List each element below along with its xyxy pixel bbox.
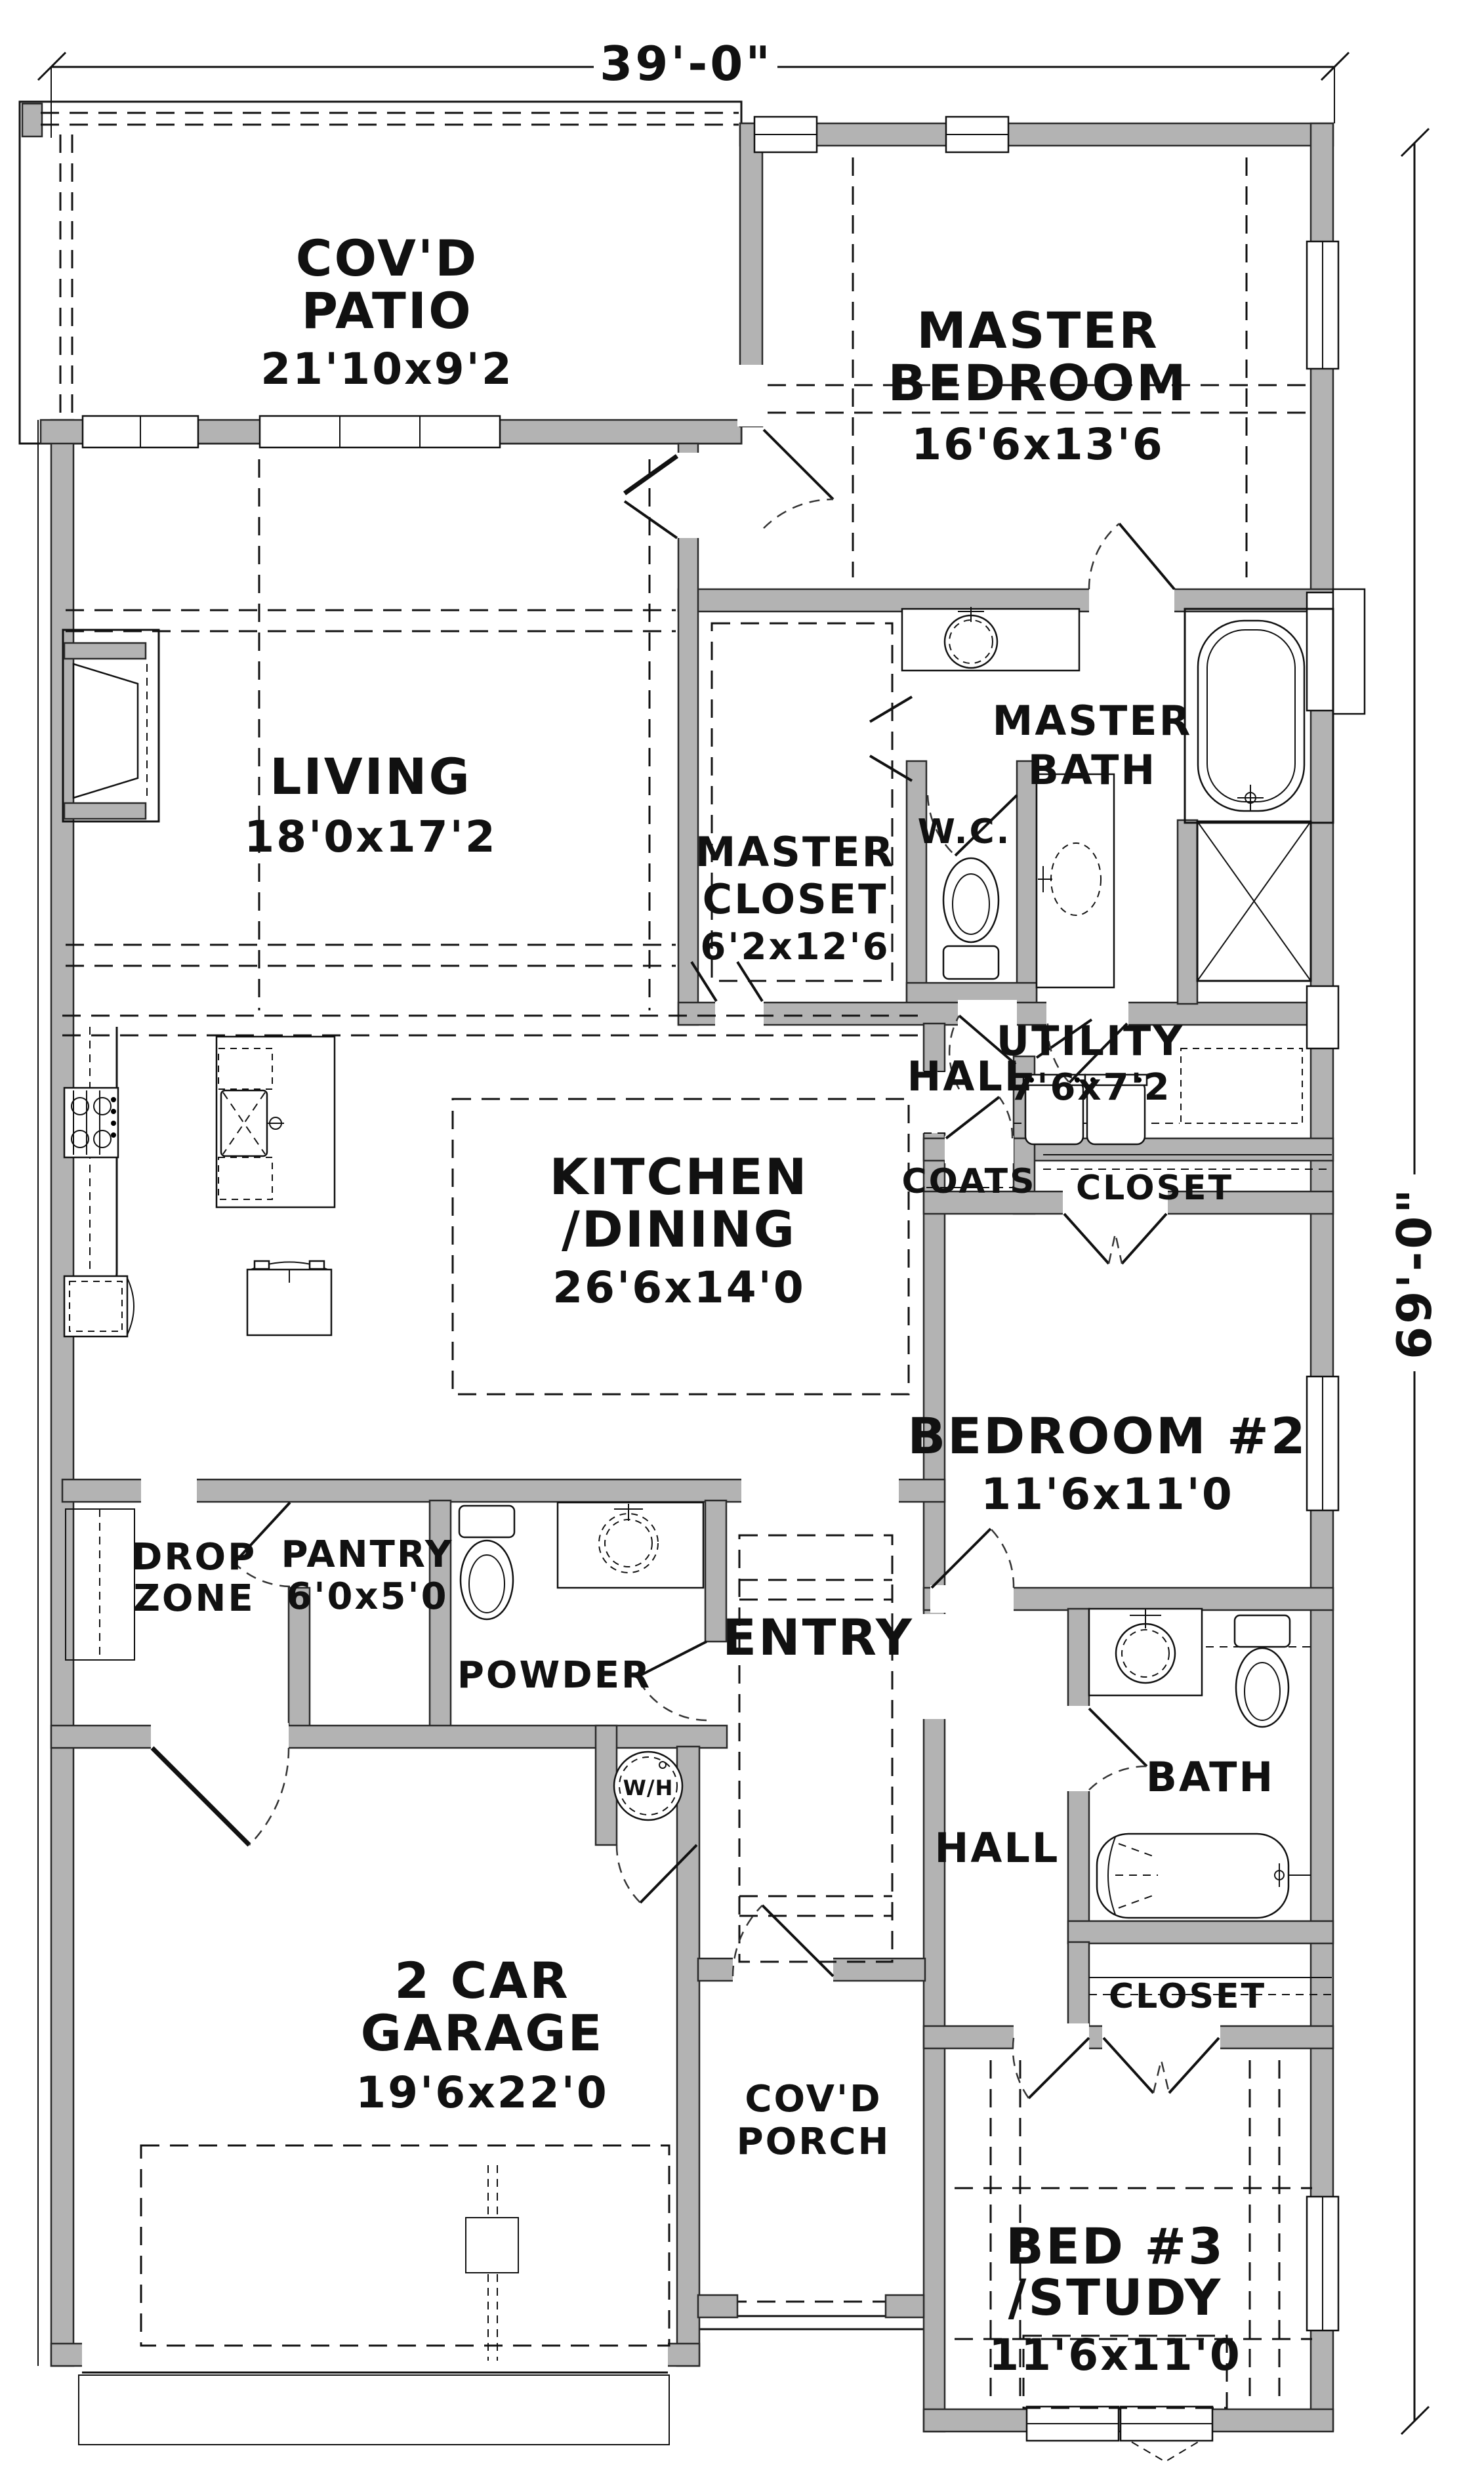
living-dims: 18'0x17'2 (244, 812, 497, 862)
kitchen-island (216, 1037, 335, 1207)
master-vanity (902, 607, 1079, 671)
master-bedroom-label-1: MASTER (917, 301, 1159, 360)
kitchen-dims: 26'6x14'0 (552, 1262, 806, 1313)
bedroom2-label: BEDROOM #2 (907, 1407, 1307, 1465)
pantry-dims: 6'0x5'0 (286, 1575, 448, 1618)
utility-label: UTILITY (997, 1017, 1184, 1065)
kitchen-label-2: /DINING (562, 1200, 796, 1258)
bed3-label-1: BED #3 (1006, 2217, 1225, 2275)
bed3-dims: 11'6x11'0 (989, 2330, 1242, 2380)
wall-oven-cabinet (64, 1276, 134, 1336)
floor-plan: 39'-0" 69'-0" (0, 0, 1484, 2465)
utility-dims: 7'6x7'2 (1009, 1066, 1171, 1109)
bath2-tub (1097, 1834, 1311, 1918)
master-closet-label-2: CLOSET (703, 875, 888, 923)
wc-label: W.C. (918, 812, 1012, 852)
powder-vanity (558, 1502, 703, 1588)
coats-label: COATS (901, 1162, 1036, 1201)
fireplace (63, 630, 159, 821)
dimension-top-label: 39'-0" (600, 36, 773, 91)
master-shower (1197, 821, 1311, 981)
master-bedroom-label-2: BEDROOM (888, 354, 1187, 412)
patio-label-2: PATIO (301, 281, 472, 340)
refrigerator (247, 1261, 331, 1335)
pantry-label: PANTRY (281, 1533, 454, 1576)
porch-label-1: COV'D (745, 2078, 882, 2121)
closet-bath-label: CLOSET (1109, 1977, 1266, 2016)
water-heater: W/H (614, 1752, 682, 1820)
bed3-label-2: /STUDY (1008, 2268, 1223, 2327)
hall-bed-label: HALL (935, 1824, 1060, 1872)
entry-label: ENTRY (722, 1608, 914, 1667)
bath2-label: BATH (1146, 1753, 1275, 1801)
garage-label-1: 2 CAR (394, 1951, 569, 2010)
floor-plan-drawing: 39'-0" 69'-0" (0, 0, 1484, 2465)
drop-zone-label-2: ZONE (133, 1577, 255, 1620)
drop-zone-bench (66, 1509, 134, 1660)
master-bedroom-dims: 16'6x13'6 (911, 419, 1165, 470)
patio-label-1: COV'D (296, 229, 479, 287)
garage-apron (79, 2363, 669, 2445)
master-bath-label-1: MASTER (993, 697, 1193, 745)
garage-label-2: GARAGE (361, 2004, 604, 2062)
bedroom2-dims: 11'6x11'0 (981, 1469, 1234, 1520)
powder-toilet (459, 1506, 514, 1619)
wc-toilet (943, 858, 999, 979)
cooktop (64, 1088, 118, 1157)
bath2-vanity (1089, 1609, 1202, 1695)
closet-hall-label: CLOSET (1076, 1169, 1233, 1208)
dimension-right-label: 69'-0" (1387, 1186, 1442, 1359)
garage-post (466, 2165, 518, 2361)
kitchen-label-1: KITCHEN (550, 1148, 809, 1206)
master-vanity-2 (1037, 774, 1114, 987)
master-bath-label-2: BATH (1028, 746, 1157, 794)
drop-zone-label-1: DROP (132, 1536, 257, 1579)
water-heater-label: W/H (623, 1775, 674, 1800)
garage-dims: 19'6x22'0 (356, 2067, 609, 2118)
dimension-right: 69'-0" (1387, 129, 1442, 2434)
master-closet-dims: 6'2x12'6 (700, 926, 890, 968)
living-label: LIVING (270, 747, 472, 806)
master-closet-label-1: MASTER (695, 828, 896, 876)
powder-label: POWDER (457, 1654, 651, 1697)
porch-label-2: PORCH (737, 2121, 891, 2163)
patio-dims: 21'10x9'2 (260, 344, 514, 394)
bath2-toilet (1206, 1615, 1311, 1727)
